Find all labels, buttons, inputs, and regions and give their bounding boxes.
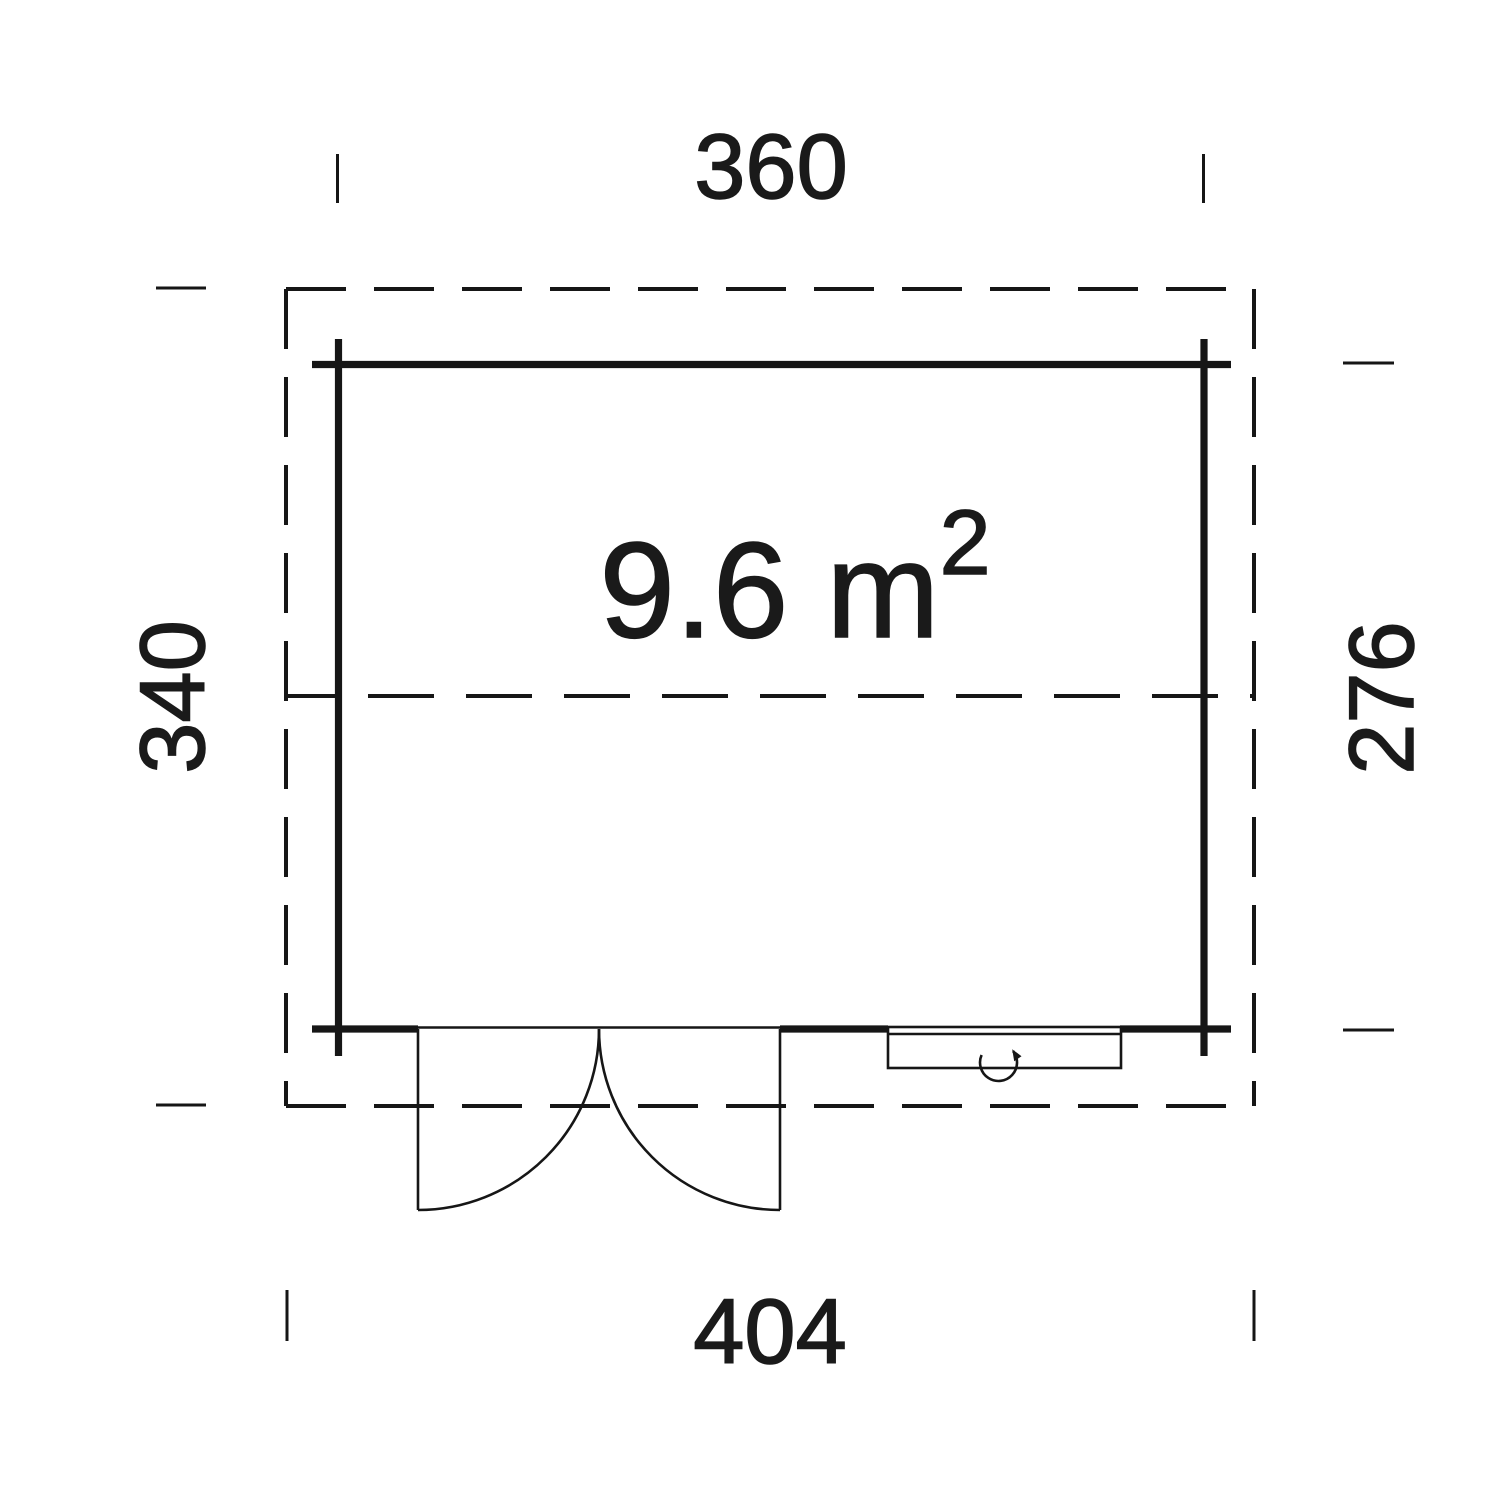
svg-text:340: 340 — [122, 620, 224, 774]
svg-text:360: 360 — [694, 116, 848, 218]
svg-text:404: 404 — [693, 1281, 847, 1383]
svg-text:276: 276 — [1331, 621, 1433, 775]
svg-text:9.6 m2: 9.6 m2 — [599, 492, 990, 666]
